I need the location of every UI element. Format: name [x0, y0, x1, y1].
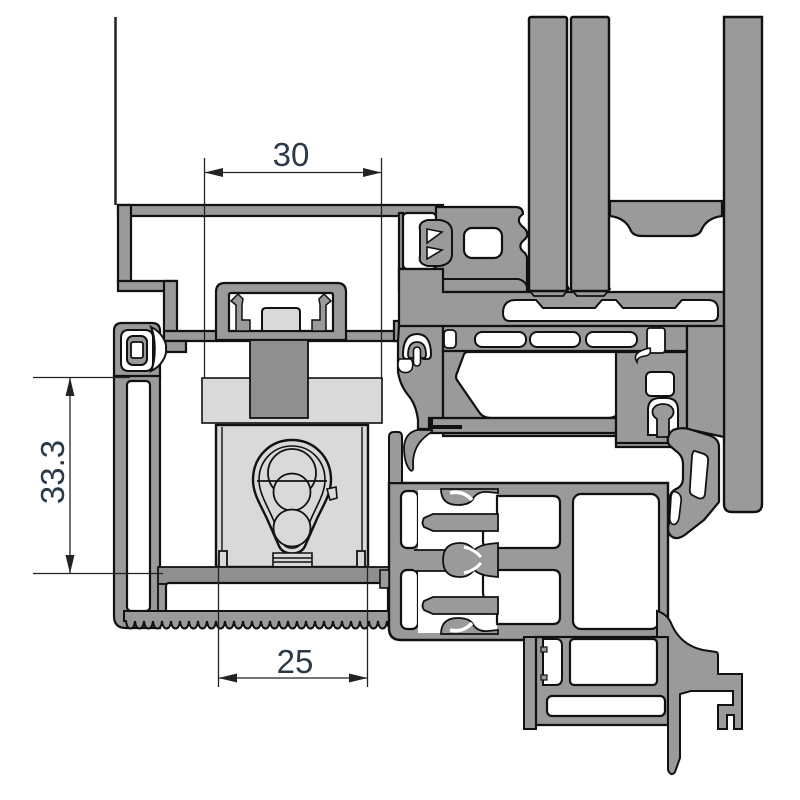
svg-text:33.3: 33.3: [34, 440, 71, 504]
svg-text:30: 30: [273, 136, 310, 173]
svg-text:25: 25: [277, 643, 314, 680]
